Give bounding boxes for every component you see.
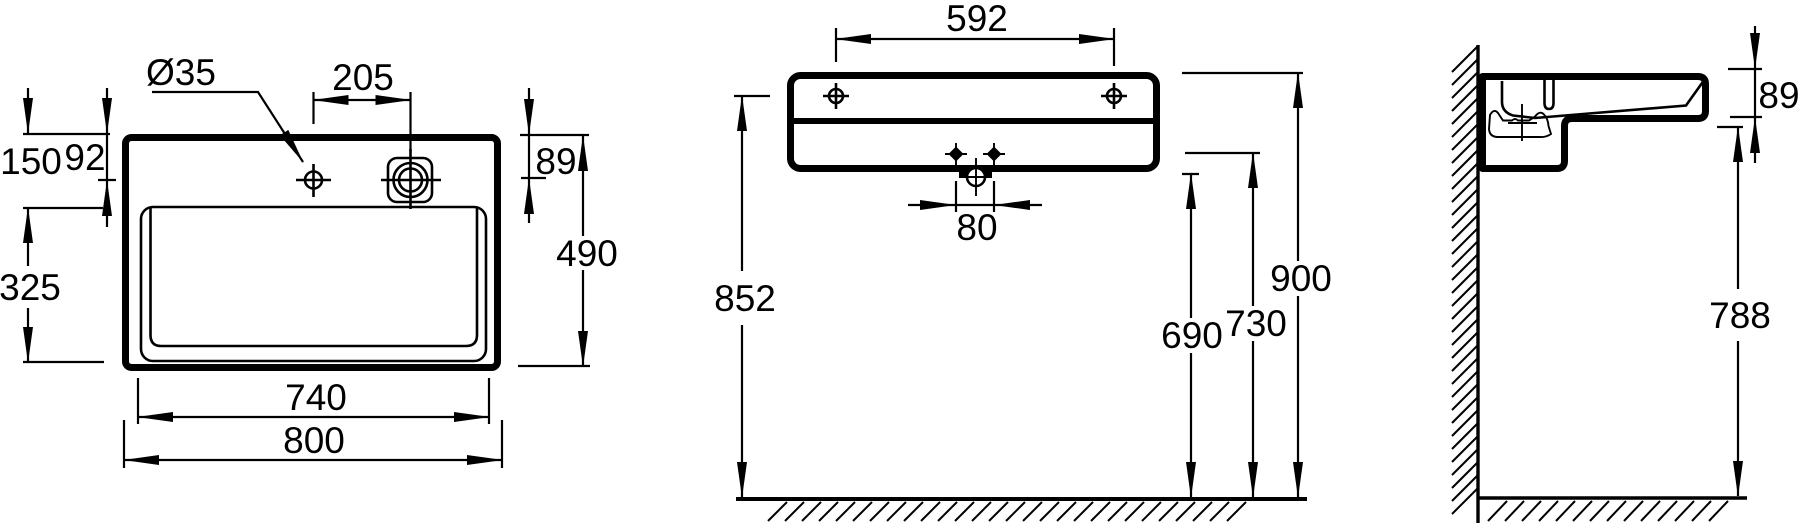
dim-floor-to-rim: 900 <box>1270 258 1332 299</box>
dim-floor-to-siphon-high: 730 <box>1225 303 1287 344</box>
bowl-outline-plan <box>141 207 486 361</box>
bowl-inner-contour <box>151 208 478 346</box>
dim-front-to-overflow: 89 <box>535 141 576 182</box>
dimension-bottom-stack: 740 800 <box>124 377 502 468</box>
dim-fixing-hole-spacing: 592 <box>946 0 1008 39</box>
drain-outlet-icon <box>959 158 992 196</box>
dimension-heights-right: 690 730 900 <box>1161 73 1332 497</box>
overflow-hole-icon <box>381 149 441 209</box>
dim-faucet-hole-dia: Ø35 <box>146 52 216 93</box>
siphon-fixing-marks <box>945 143 1005 165</box>
diameter-leader: Ø35 <box>146 52 303 162</box>
floor-hatching-front <box>768 502 1246 521</box>
dim-hole-spacing: 205 <box>332 57 394 98</box>
dim-front-to-faucet: 92 <box>64 137 105 178</box>
technical-drawing-canvas: Ø35 205 150 92 325 <box>0 0 1800 524</box>
dim-floor-to-fixing-holes: 852 <box>714 278 776 319</box>
plan-view: Ø35 205 150 92 325 <box>0 52 618 468</box>
faucet-hole-icon <box>296 164 331 197</box>
dim-floor-to-siphon-low: 690 <box>1161 315 1223 356</box>
wall-hatching <box>1452 46 1478 514</box>
fixing-hole-left-icon <box>823 83 849 109</box>
dim-front-to-bowl: 150 <box>0 141 62 182</box>
dim-bowl-width: 740 <box>285 377 347 418</box>
washbasin-dimension-drawing: Ø35 205 150 92 325 <box>0 0 1800 524</box>
fixing-hole-right-icon <box>1101 83 1127 109</box>
dimension-592: 592 <box>836 0 1114 66</box>
side-view: 89 788 <box>1452 26 1800 523</box>
dim-overall-depth: 490 <box>556 233 618 274</box>
dimension-80: 80 <box>908 181 1042 248</box>
dimension-left-stack: 150 92 325 <box>0 88 116 362</box>
dim-bowl-depth: 325 <box>0 267 61 308</box>
dim-drain-offset: 80 <box>956 207 997 248</box>
front-view: 592 80 852 690 730 <box>714 0 1332 521</box>
dim-floor-to-underside: 788 <box>1709 295 1771 336</box>
floor-hatching-side <box>1488 501 1728 521</box>
dimension-right-stack: 89 490 <box>518 88 618 366</box>
dim-apron-height: 89 <box>1758 75 1799 116</box>
dim-overall-width: 800 <box>283 420 345 461</box>
dimension-852: 852 <box>714 96 776 497</box>
dimension-788: 788 <box>1709 127 1771 496</box>
